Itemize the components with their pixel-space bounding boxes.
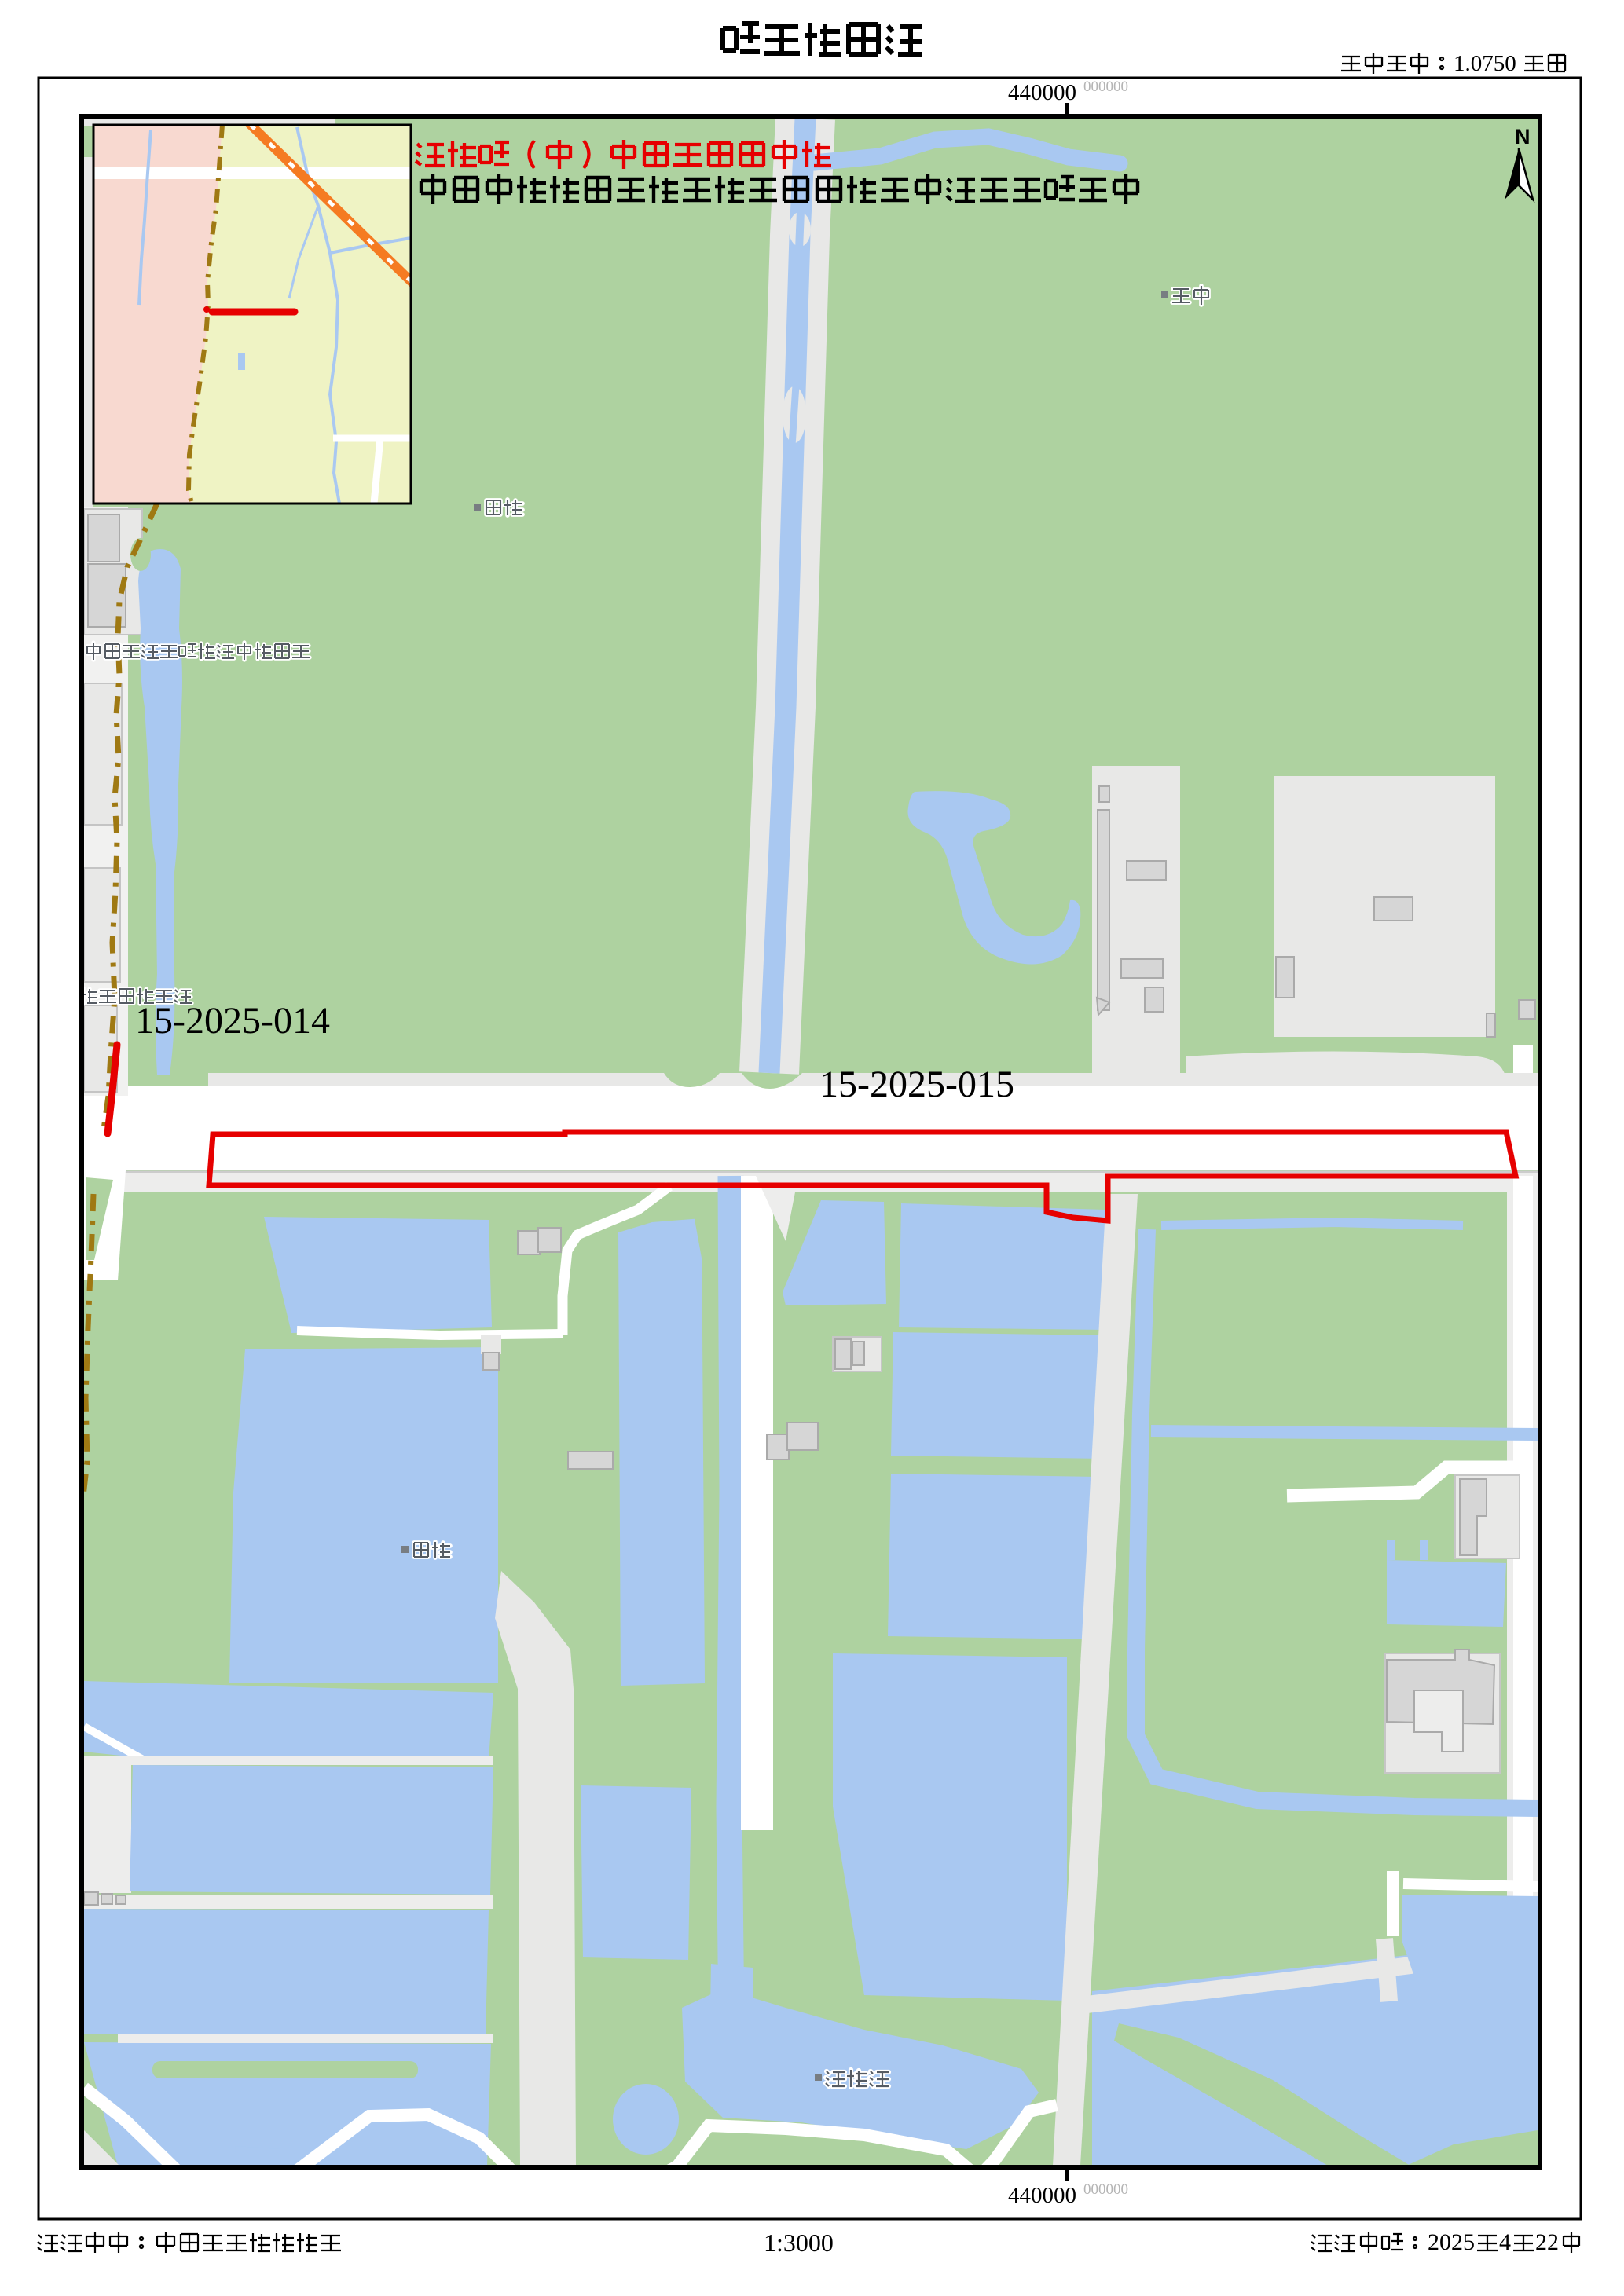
svg-text:1:3000: 1:3000 [764, 2228, 834, 2257]
svg-text:N: N [1515, 125, 1531, 148]
svg-text:000000: 000000 [1083, 79, 1128, 95]
svg-text:15-2025-015: 15-2025-015 [819, 1064, 1014, 1105]
svg-text:4: 4 [1499, 2229, 1511, 2255]
svg-text:440000: 440000 [1008, 80, 1076, 105]
svg-text:22: 22 [1535, 2229, 1559, 2255]
svg-text:000000: 000000 [1083, 2181, 1128, 2198]
svg-text:15-2025-014: 15-2025-014 [135, 1000, 330, 1042]
svg-text:2025: 2025 [1428, 2229, 1475, 2255]
svg-text:440000: 440000 [1008, 2183, 1076, 2208]
svg-text:1.0750: 1.0750 [1454, 51, 1516, 76]
